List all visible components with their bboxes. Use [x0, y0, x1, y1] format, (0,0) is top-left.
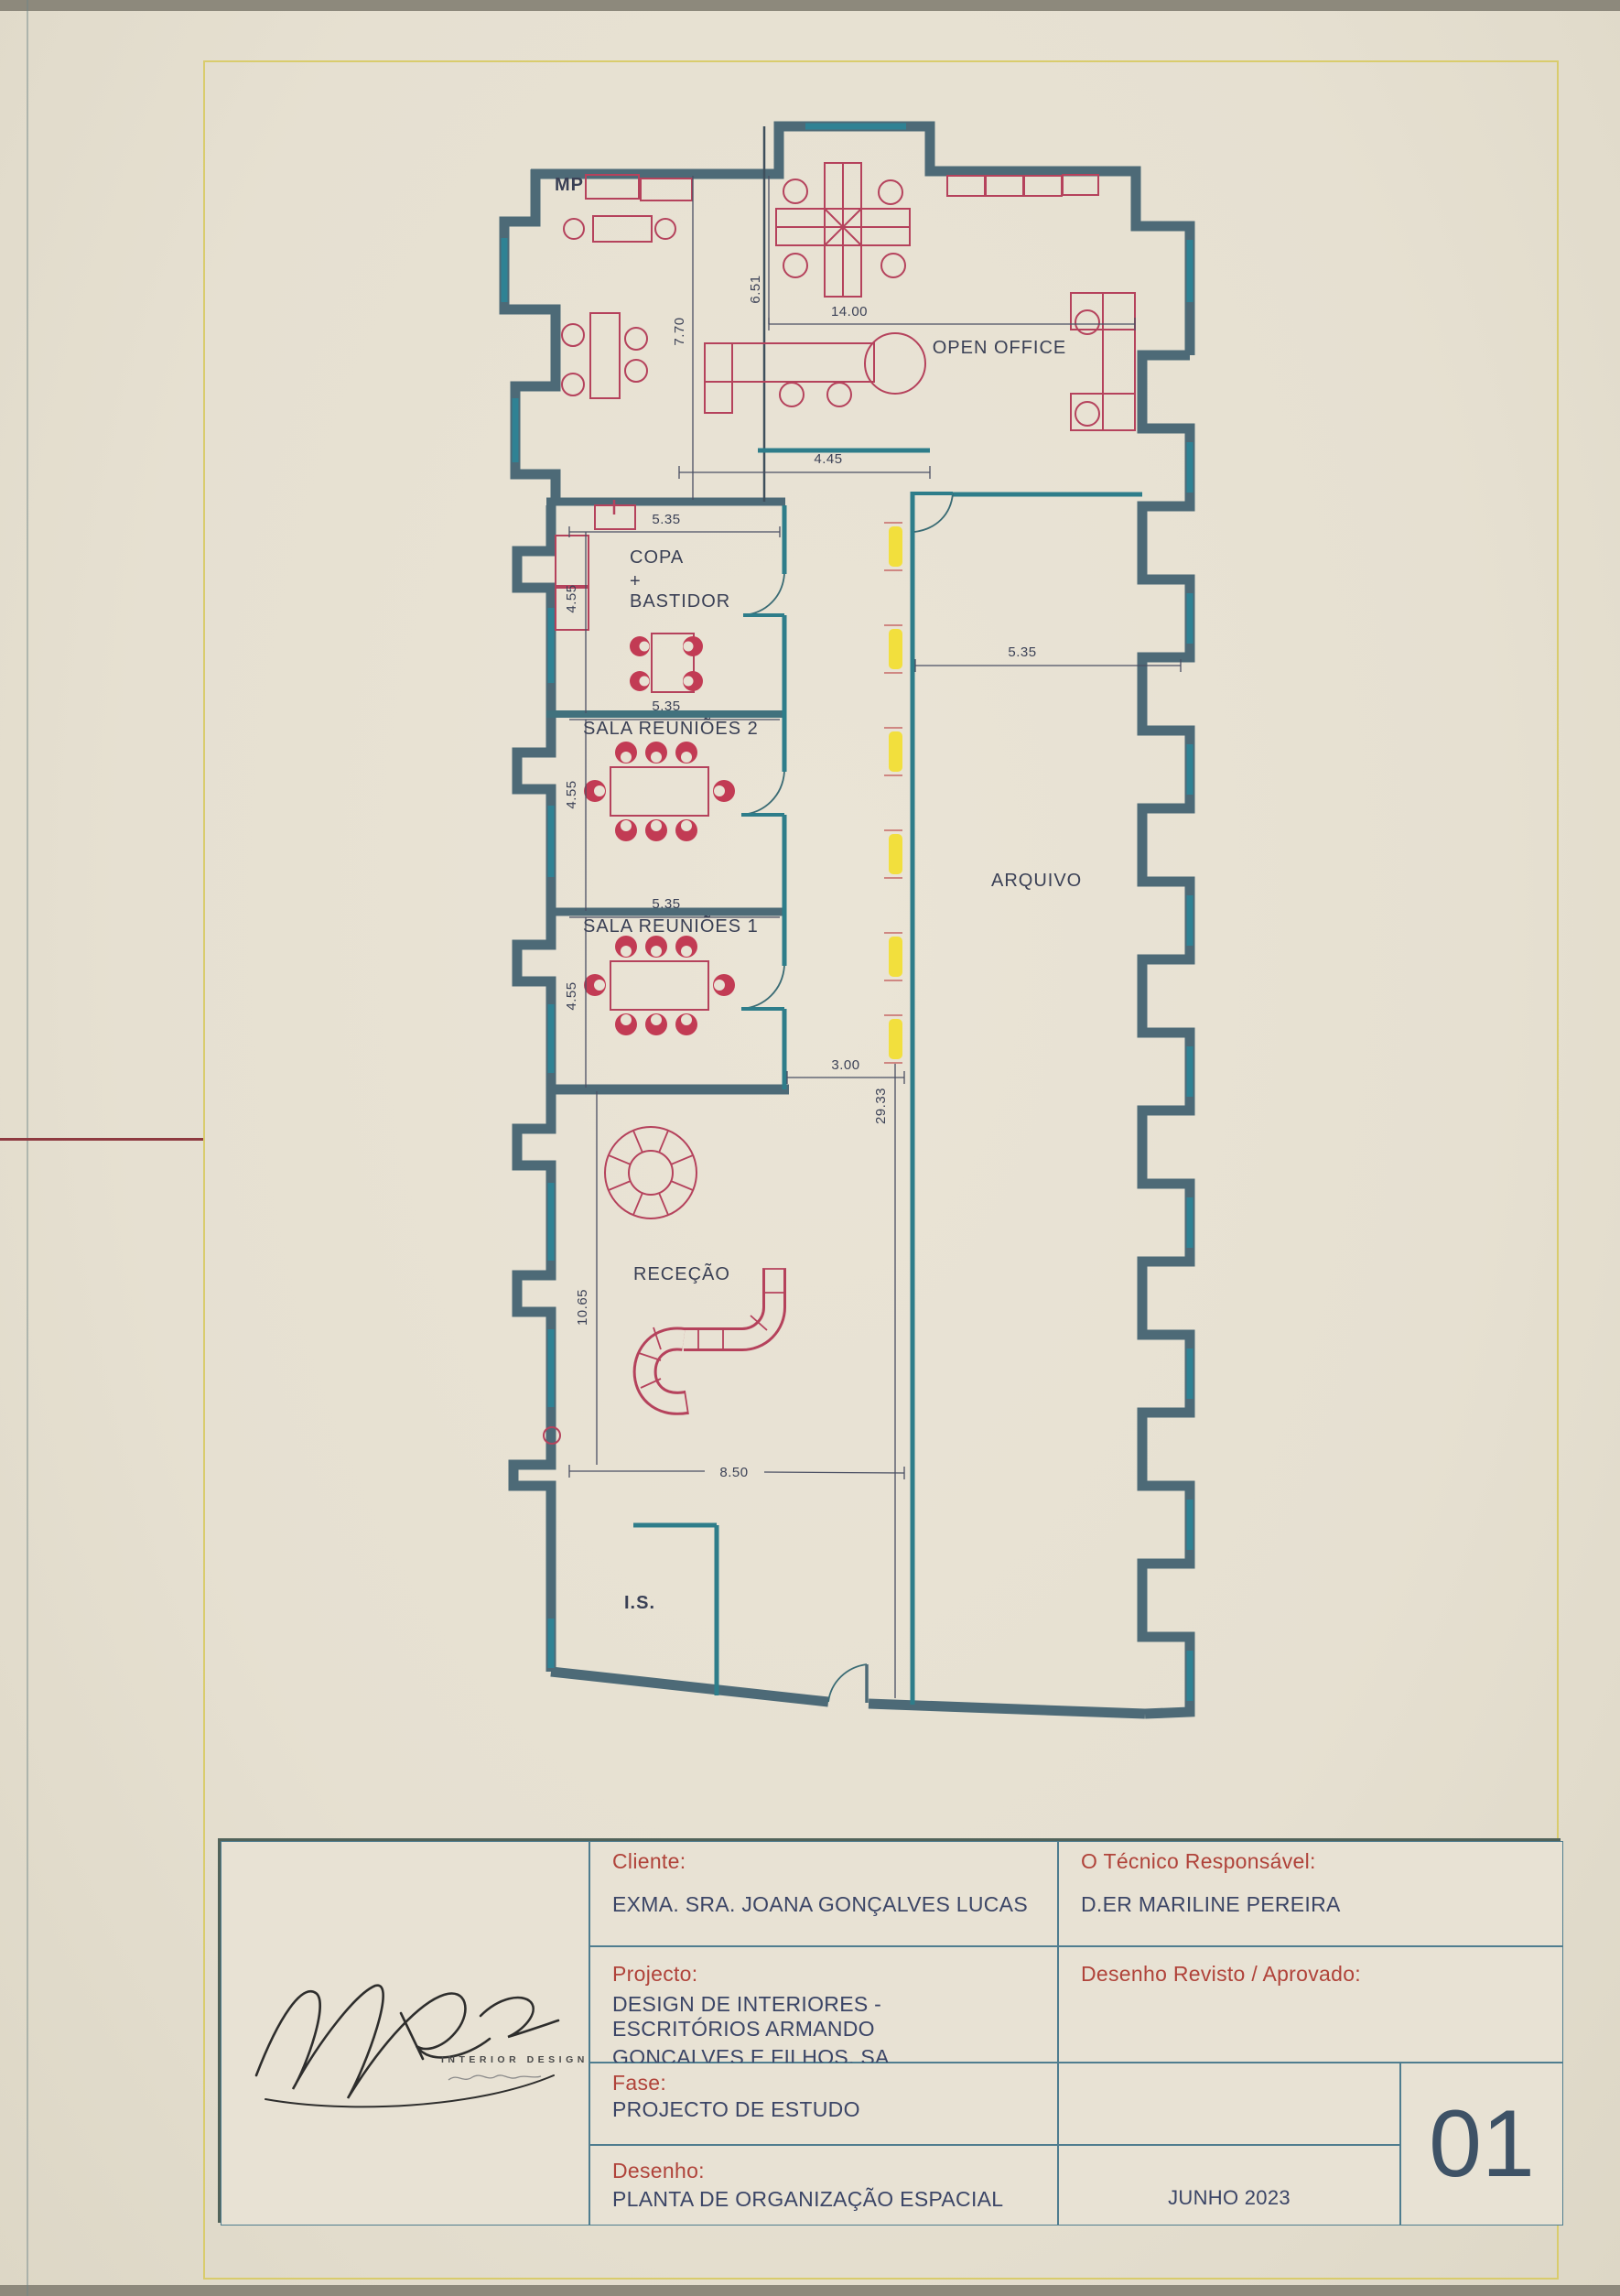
- chair-seat: [651, 820, 662, 831]
- chair-seat: [594, 980, 605, 991]
- sala-reunioes-2-furniture: [584, 742, 735, 841]
- chair: [879, 180, 902, 204]
- chair: [564, 219, 584, 239]
- desk-return: [705, 343, 732, 413]
- dim-line: [569, 526, 780, 537]
- chair-seat: [651, 1014, 662, 1025]
- label-copa-1: COPA: [630, 547, 684, 568]
- light-icon: [889, 526, 902, 567]
- revisto-label: Desenho Revisto / Aprovado:: [1081, 1962, 1540, 1987]
- light-icon: [889, 731, 902, 772]
- dim-corridor-w: 3.00: [831, 1057, 859, 1073]
- counter: [556, 536, 589, 586]
- open-office-right-desk: [1071, 293, 1135, 430]
- door-symbols: [741, 493, 953, 1703]
- room-labels: OPEN OFFICE COPA + BASTIDOR SALA REUNIÕE…: [555, 175, 1082, 1613]
- chair: [780, 383, 804, 406]
- chair-seat: [684, 677, 694, 687]
- sala-reunioes-1-furniture: [584, 936, 735, 1035]
- dim-sr1-w: 5.35: [652, 896, 680, 912]
- cabinet: [1063, 175, 1098, 195]
- fase-value: PROJECTO DE ESTUDO: [612, 2097, 1035, 2122]
- chair: [655, 219, 675, 239]
- dim-445: 4.45: [814, 451, 842, 467]
- round-sofa-inner: [629, 1151, 673, 1195]
- round-sofa-outer: [605, 1127, 697, 1218]
- label-is: I.S.: [624, 1593, 655, 1613]
- open-office-cross-desk: [776, 163, 910, 297]
- open-office-curved-desk: [705, 333, 925, 413]
- empty-cell: [1058, 2063, 1400, 2145]
- dim-rececao-h: 10.65: [575, 1289, 590, 1326]
- projecto-value-line1: DESIGN DE INTERIORES - ESCRITÓRIOS ARMAN…: [612, 1992, 1035, 2041]
- projecto-cell: Projecto: DESIGN DE INTERIORES - ESCRITÓ…: [589, 1946, 1058, 2063]
- chairs: [584, 936, 735, 1035]
- desk: [590, 313, 620, 398]
- cabinet: [1024, 176, 1062, 196]
- label-mp: MP: [555, 175, 584, 195]
- tecnico-value: D.ER MARILINE PEREIRA: [1081, 1892, 1540, 1917]
- dim-copa-h: 4.55: [564, 584, 579, 612]
- door-arcs: [741, 493, 953, 1702]
- dim-line: [769, 318, 1135, 330]
- label-rececao: RECEÇÃO: [633, 1262, 730, 1284]
- dim-bottom-w: 8.50: [719, 1465, 748, 1480]
- desenho-cell: Desenho: PLANTA DE ORGANIZAÇÃO ESPACIAL: [589, 2145, 1058, 2226]
- photographed-drawing-sheet: { "title_block": { "cliente_label": "Cli…: [0, 0, 1620, 2296]
- dim-line: [787, 1071, 904, 1084]
- wall-left-rececao: [513, 1089, 551, 1672]
- cliente-cell: Cliente: EXMA. SRA. JOANA GONÇALVES LUCA…: [589, 1841, 1058, 1946]
- chair-seat: [681, 820, 692, 831]
- cabinet: [986, 176, 1023, 196]
- corridor-lights: [884, 523, 902, 1063]
- tecnico-label: O Técnico Responsável:: [1081, 1849, 1540, 1874]
- fase-cell: Fase: PROJECTO DE ESTUDO: [589, 2063, 1058, 2145]
- tecnico-cell: O Técnico Responsável: D.ER MARILINE PER…: [1058, 1841, 1563, 1946]
- cabinet: [947, 176, 985, 196]
- chairs: [584, 742, 735, 841]
- light-icon: [889, 629, 902, 669]
- label-copa-2: +: [630, 571, 642, 591]
- chair-seat: [621, 946, 632, 957]
- sheet-number-cell: 01: [1400, 2063, 1563, 2226]
- chair: [783, 254, 807, 277]
- wall-left-top-zigzag: [504, 169, 556, 505]
- light-icon: [889, 1019, 902, 1059]
- squiggle: [448, 2075, 541, 2080]
- brand-wordmark: INTERIOR DESIGN: [441, 2054, 589, 2065]
- chair: [1075, 310, 1099, 334]
- brand-signature: [238, 1929, 577, 2121]
- dim-651: 6.51: [748, 275, 763, 303]
- chair: [562, 374, 584, 395]
- wall-bottom: [551, 1672, 1145, 1714]
- light-brackets: [884, 523, 902, 1063]
- date-value: JUNHO 2023: [1168, 2186, 1291, 2210]
- conference-table: [610, 961, 708, 1010]
- chair: [881, 254, 905, 277]
- chair: [1075, 402, 1099, 426]
- copa-chairs: [630, 636, 703, 691]
- chair-seat: [640, 677, 650, 687]
- dim-copa-w: 5.35: [652, 512, 680, 527]
- chair-seat: [681, 752, 692, 763]
- signature-stroke: [401, 2013, 423, 2059]
- revisto-cell: Desenho Revisto / Aprovado:: [1058, 1946, 1563, 2063]
- cabinet: [641, 179, 692, 200]
- fase-label: Fase:: [612, 2071, 1035, 2096]
- open-office-cabinet-row: [947, 175, 1098, 196]
- dim-arquivo-w: 5.35: [1008, 644, 1036, 660]
- logo-script-squiggle: [445, 2071, 545, 2085]
- rececao-furniture: [544, 1127, 786, 1444]
- dimension-texts: 14.00 6.51 7.70 4.45 5.35 4.55 5.35 4.55…: [564, 275, 1037, 1480]
- left-room-desks: [562, 216, 675, 398]
- desk: [705, 343, 874, 382]
- chair-seat: [621, 1014, 632, 1025]
- chair-seat: [681, 1014, 692, 1025]
- signature-stroke: [481, 1998, 558, 2037]
- chair-seat: [651, 752, 662, 763]
- desk: [1103, 293, 1135, 430]
- chair-seat: [640, 642, 650, 652]
- dim-770: 7.70: [672, 317, 687, 345]
- label-sala-reunioes-2: SALA REUNIÕES 2: [583, 717, 759, 739]
- dim-open-office-width: 14.00: [831, 304, 868, 319]
- cliente-value: EXMA. SRA. JOANA GONÇALVES LUCAS: [612, 1892, 1035, 1917]
- chair: [625, 328, 647, 350]
- desenho-label: Desenho:: [612, 2159, 1035, 2183]
- dim-sr2-w: 5.35: [652, 699, 680, 714]
- chair-seat: [651, 946, 662, 957]
- title-block: INTERIOR DESIGN Cliente: EXMA. SRA. JOAN…: [218, 1838, 1561, 2223]
- dim-sr1-h: 4.55: [564, 981, 579, 1010]
- chair-seat: [684, 642, 694, 652]
- label-open-office: OPEN OFFICE: [933, 338, 1067, 358]
- dim-line: [679, 466, 930, 479]
- chair-seat: [621, 820, 632, 831]
- dim-sr2-h: 4.55: [564, 780, 579, 808]
- chair-seat: [714, 785, 725, 796]
- wall-right-sawtooth: [1142, 355, 1190, 1714]
- date-cell: JUNHO 2023: [1058, 2145, 1400, 2226]
- chair: [562, 324, 584, 346]
- light-icon: [889, 834, 902, 874]
- chair-seat: [621, 752, 632, 763]
- dim-building-length: 29.33: [873, 1088, 889, 1124]
- s-curved-desk: [639, 1269, 786, 1414]
- door-leaves: [741, 493, 953, 1009]
- desk: [593, 216, 652, 242]
- wall-left-rooms: [517, 505, 551, 1089]
- chair: [783, 179, 807, 203]
- chair-seat: [681, 946, 692, 957]
- round-sofa-spokes: [609, 1131, 693, 1215]
- chair: [625, 360, 647, 382]
- light-icon: [889, 937, 902, 977]
- logo-cell: INTERIOR DESIGN: [221, 1841, 589, 2226]
- label-sala-reunioes-1: SALA REUNIÕES 1: [583, 915, 759, 937]
- desenho-value: PLANTA DE ORGANIZAÇÃO ESPACIAL: [612, 2187, 1035, 2212]
- chair-seat: [594, 785, 605, 796]
- chair-seat: [714, 980, 725, 991]
- conference-table: [610, 767, 708, 816]
- projecto-label: Projecto:: [612, 1962, 1035, 1987]
- label-arquivo: ARQUIVO: [991, 871, 1082, 891]
- label-copa-3: BASTIDOR: [630, 591, 730, 612]
- chair: [827, 383, 851, 406]
- cliente-label: Cliente:: [612, 1849, 1035, 1874]
- sheet-number: 01: [1429, 2090, 1535, 2199]
